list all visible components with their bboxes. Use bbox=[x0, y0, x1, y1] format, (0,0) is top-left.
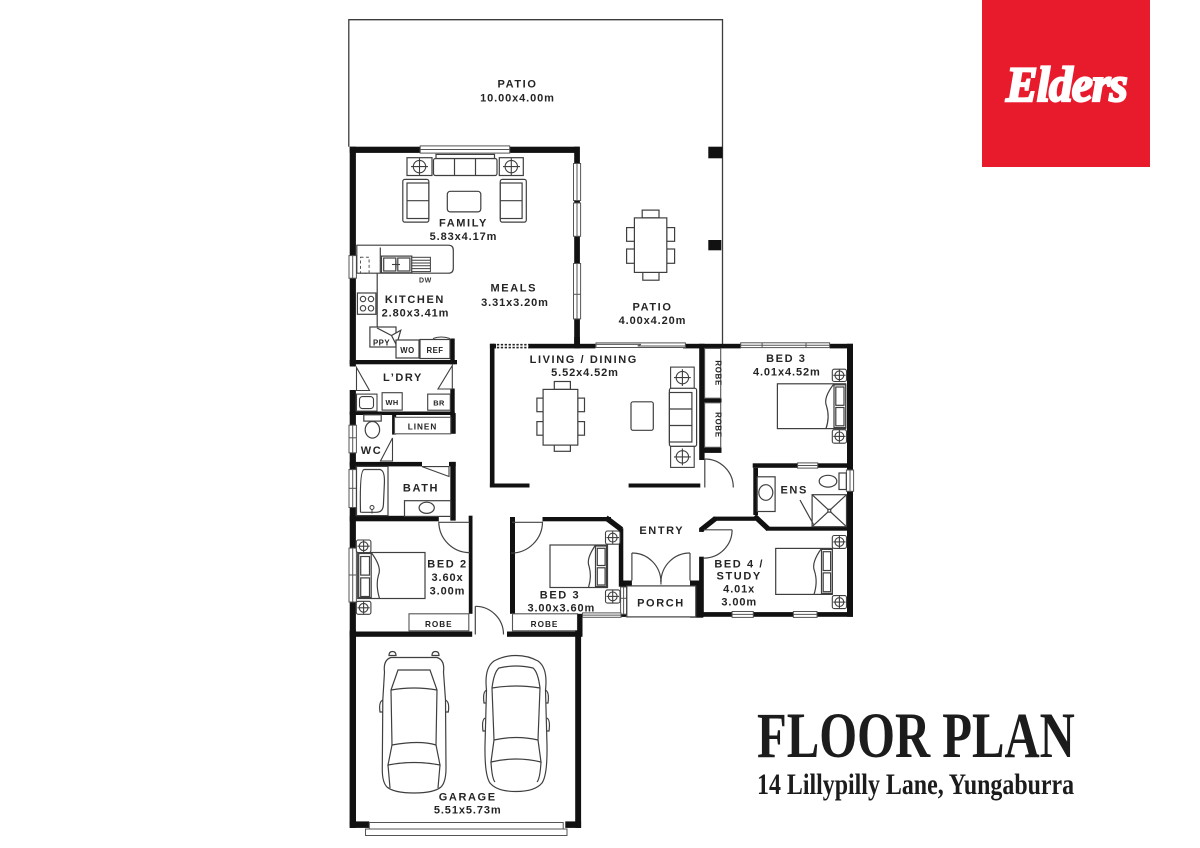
svg-text:REF: REF bbox=[426, 346, 443, 355]
svg-text:WH: WH bbox=[385, 398, 398, 407]
svg-text:LIVING / DINING: LIVING / DINING bbox=[530, 354, 638, 366]
svg-text:ROBE: ROBE bbox=[425, 620, 453, 629]
svg-text:WO: WO bbox=[400, 346, 414, 355]
svg-text:WC: WC bbox=[361, 445, 383, 457]
svg-text:BR: BR bbox=[433, 398, 445, 407]
svg-text:DW: DW bbox=[419, 278, 432, 285]
svg-text:FAMILY: FAMILY bbox=[439, 218, 488, 230]
svg-text:3.00x3.60m: 3.00x3.60m bbox=[527, 602, 595, 614]
svg-text:5.83x4.17m: 5.83x4.17m bbox=[430, 231, 498, 243]
svg-text:Elders: Elders bbox=[1005, 57, 1127, 112]
svg-text:PORCH: PORCH bbox=[637, 598, 685, 610]
svg-text:10.00x4.00m: 10.00x4.00m bbox=[480, 93, 555, 105]
svg-text:ENTRY: ENTRY bbox=[639, 525, 684, 537]
svg-text:PPY: PPY bbox=[373, 338, 390, 347]
svg-text:ROBE: ROBE bbox=[531, 620, 559, 629]
svg-text:LINEN: LINEN bbox=[408, 422, 438, 431]
svg-text:ROBE: ROBE bbox=[713, 360, 722, 386]
svg-text:BED 2: BED 2 bbox=[427, 558, 467, 570]
svg-text:ROBE: ROBE bbox=[713, 412, 722, 438]
svg-text:4.01x: 4.01x bbox=[723, 583, 755, 595]
svg-text:PATIO: PATIO bbox=[633, 302, 673, 314]
svg-text:BED 3: BED 3 bbox=[540, 589, 580, 601]
svg-text:4.01x4.52m: 4.01x4.52m bbox=[753, 366, 821, 378]
svg-text:BED 4 /: BED 4 / bbox=[714, 558, 764, 570]
svg-text:3.00m: 3.00m bbox=[721, 596, 757, 608]
svg-text:5.52x4.52m: 5.52x4.52m bbox=[551, 367, 619, 379]
svg-text:PATIO: PATIO bbox=[498, 79, 538, 91]
svg-text:BED 3: BED 3 bbox=[766, 353, 806, 365]
svg-text:BATH: BATH bbox=[403, 483, 439, 495]
svg-text:KITCHEN: KITCHEN bbox=[385, 294, 445, 306]
svg-text:3.00m: 3.00m bbox=[430, 585, 466, 597]
svg-text:ENS: ENS bbox=[780, 485, 807, 497]
svg-text:3.60x: 3.60x bbox=[431, 572, 463, 584]
svg-text:L’DRY: L’DRY bbox=[383, 372, 423, 384]
svg-text:GARAGE: GARAGE bbox=[439, 792, 497, 804]
svg-text:3.31x3.20m: 3.31x3.20m bbox=[481, 297, 549, 309]
svg-text:STUDY: STUDY bbox=[717, 571, 762, 583]
svg-text:MEALS: MEALS bbox=[491, 283, 538, 295]
svg-text:4.00x4.20m: 4.00x4.20m bbox=[619, 315, 687, 327]
svg-text:5.51x5.73m: 5.51x5.73m bbox=[434, 804, 502, 816]
svg-text:2.80x3.41m: 2.80x3.41m bbox=[382, 307, 450, 319]
